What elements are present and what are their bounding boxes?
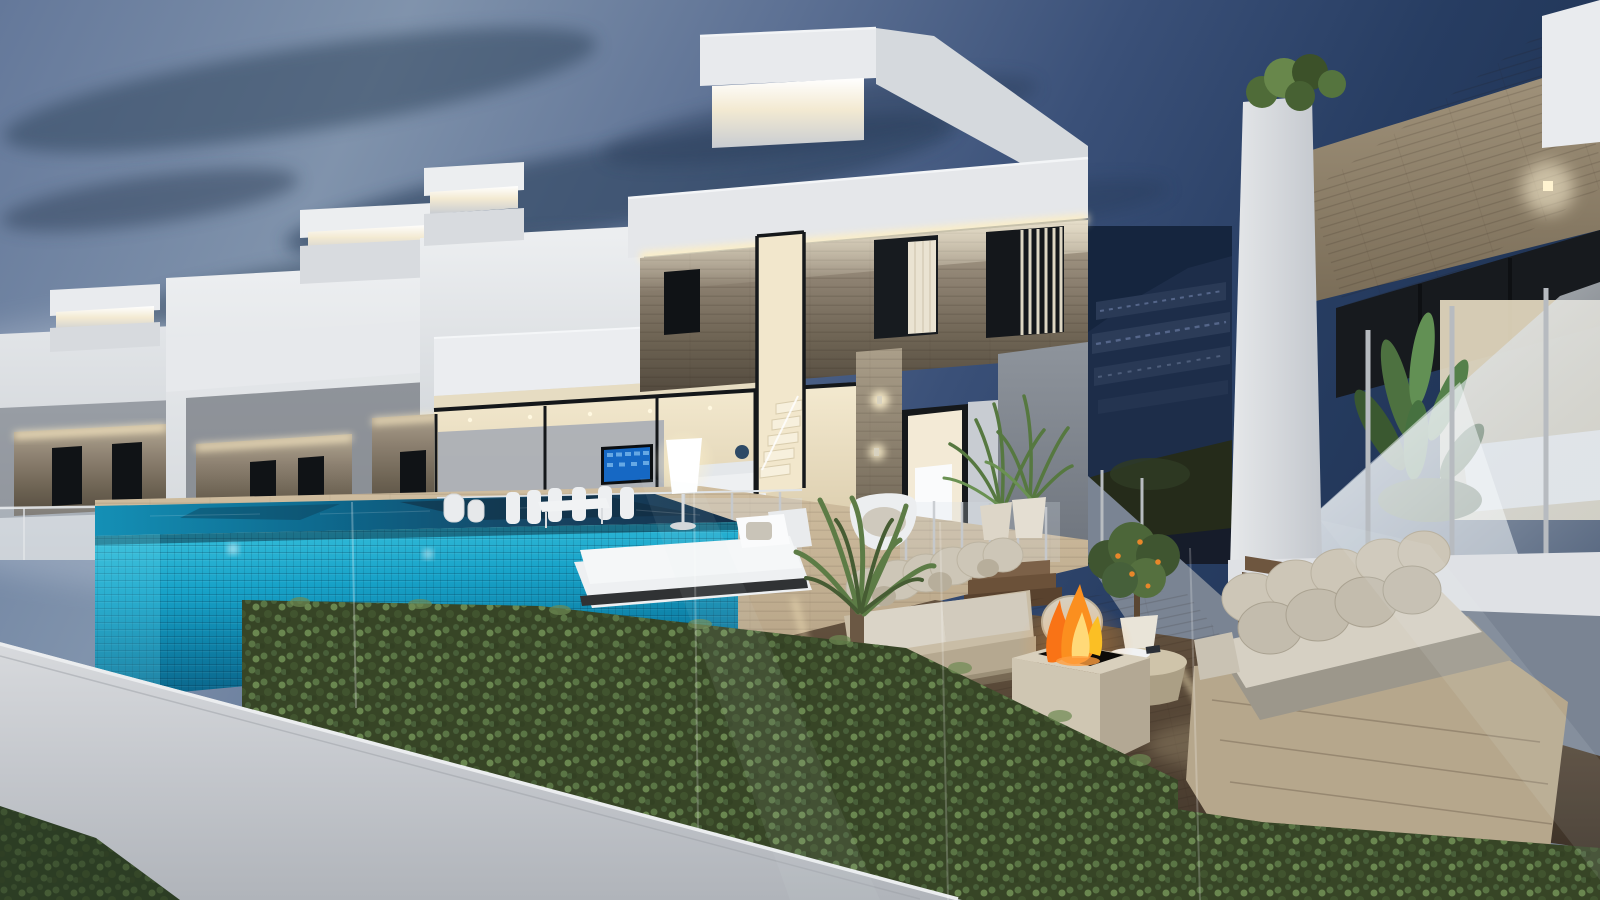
louvre-window: [986, 226, 1064, 338]
curtain-window: [874, 235, 938, 339]
roofbox-led-cove: [712, 78, 864, 148]
rendered-scene: [0, 0, 1600, 900]
stair-window: [757, 232, 804, 494]
wall-art: [735, 445, 749, 459]
pillow: [746, 522, 772, 540]
scene-canvas: [0, 0, 1600, 900]
shrub: [1110, 458, 1190, 490]
pool-light: [229, 545, 238, 554]
white-pot: [1012, 497, 1046, 538]
white-pier: [1230, 96, 1322, 568]
roof-lightbox: [700, 28, 876, 86]
white-pot: [980, 502, 1012, 540]
window: [112, 442, 142, 502]
window: [664, 269, 700, 335]
downlight: [1543, 181, 1553, 191]
window: [52, 446, 82, 506]
pool-light: [424, 550, 432, 558]
roof-fascia: [1542, 0, 1600, 148]
